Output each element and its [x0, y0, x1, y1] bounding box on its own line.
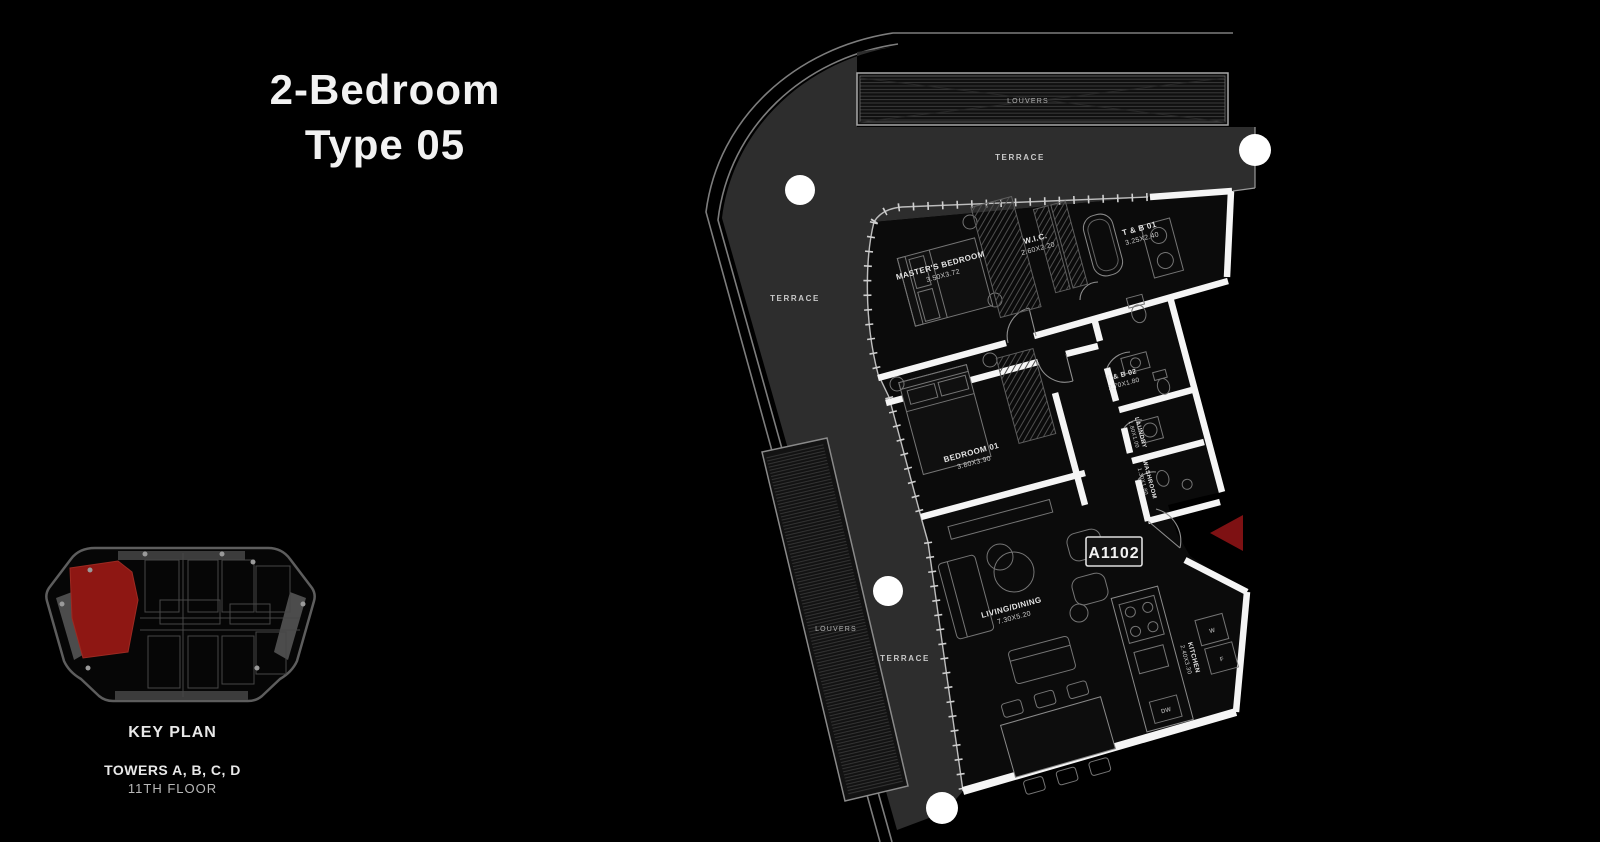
- column: [873, 576, 903, 606]
- column: [1239, 134, 1271, 166]
- key-plan: [46, 548, 314, 701]
- entrance-arrow: [1210, 515, 1243, 551]
- unit-number-badge: A1102: [1086, 537, 1142, 566]
- column: [785, 175, 815, 205]
- key-plan-highlighted-unit: [70, 561, 138, 658]
- louvers-label-left: LOUVERS: [815, 626, 857, 633]
- floor-plan-canvas: DW W F A1102 LOUVERS LOUVERS: [0, 0, 1600, 842]
- unit-number: A1102: [1088, 545, 1139, 562]
- louvers-label-top: LOUVERS: [1007, 98, 1049, 105]
- key-plan-louver-bottom: [115, 691, 248, 700]
- main-floor-plan: DW W F A1102 LOUVERS LOUVERS: [706, 33, 1271, 842]
- terrace-label-top: TERRACE: [995, 153, 1045, 162]
- page: 2-Bedroom Type 05 KEY PLAN TOWERS A, B, …: [0, 0, 1600, 842]
- key-plan-louver-top: [118, 551, 245, 560]
- terrace-label-left: TERRACE: [770, 294, 820, 303]
- column: [926, 792, 958, 824]
- terrace-label-bottom: TERRACE: [880, 654, 930, 663]
